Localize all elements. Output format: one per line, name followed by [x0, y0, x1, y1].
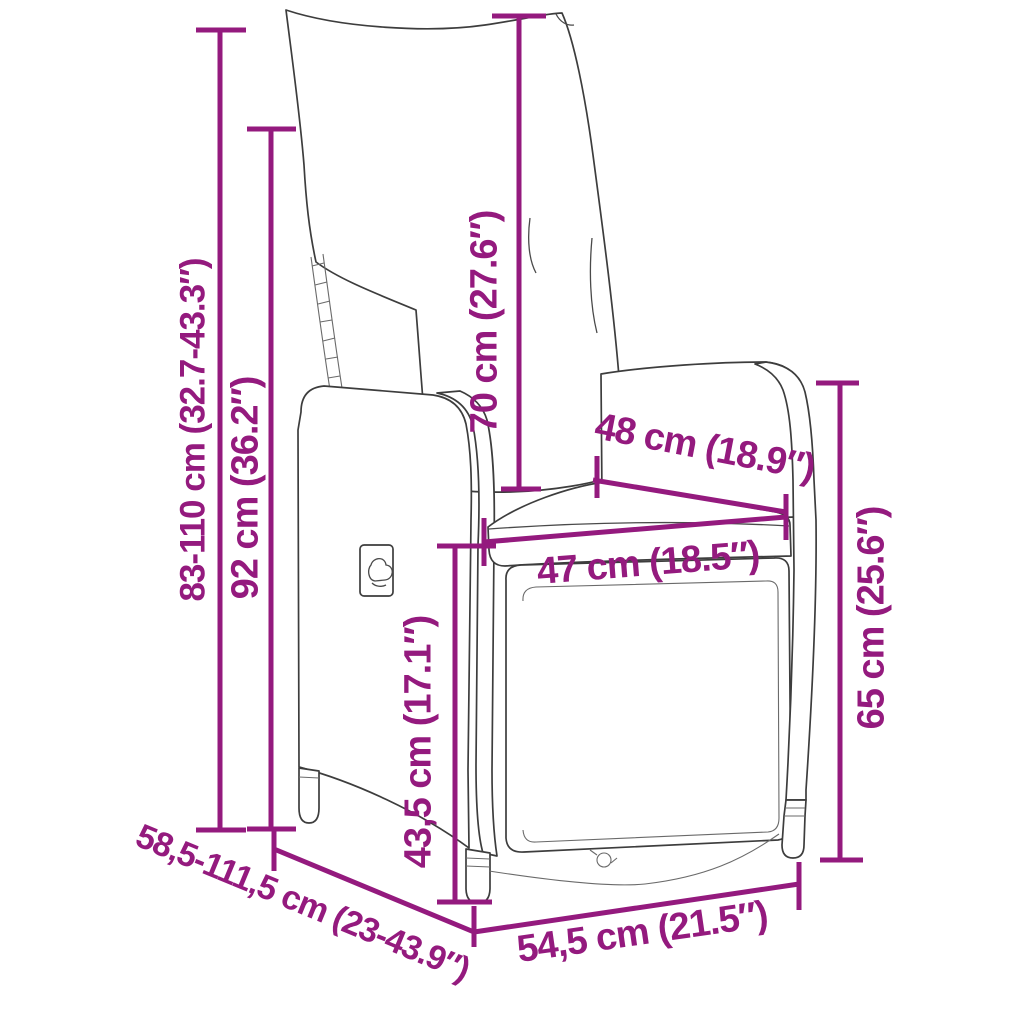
release-latch — [590, 850, 617, 867]
front-right-leg — [782, 800, 806, 858]
dimension-armrest-height: 65 cm (25.6″) — [816, 383, 892, 860]
dimension-label-overall-height-range: 83-110 cm (32.7-43.3″) — [173, 258, 212, 601]
dimension-backrest-height: 92 cm (36.2″) — [224, 129, 296, 829]
back-left-leg — [299, 768, 319, 823]
dimension-label-seat-height: 43,5 cm (17.1″) — [397, 616, 439, 868]
chair-dimension-diagram: 83-110 cm (32.7-43.3″) 92 cm (36.2″) 70 … — [0, 0, 1024, 1024]
dimension-label-armrest-height: 65 cm (25.6″) — [850, 507, 892, 730]
dimension-base-depth: 54,5 cm (21.5″) — [474, 862, 799, 971]
dimension-diagram-page: 83-110 cm (32.7-43.3″) 92 cm (36.2″) 70 … — [0, 0, 1024, 1024]
dimension-label-back-cushion-height: 70 cm (27.6″) — [463, 211, 505, 434]
front-left-leg — [466, 849, 490, 903]
panel-latch-cutout — [360, 545, 393, 596]
dimension-label-backrest-height: 92 cm (36.2″) — [224, 377, 266, 600]
left-side-panel — [298, 386, 471, 848]
front-panel — [506, 558, 791, 852]
